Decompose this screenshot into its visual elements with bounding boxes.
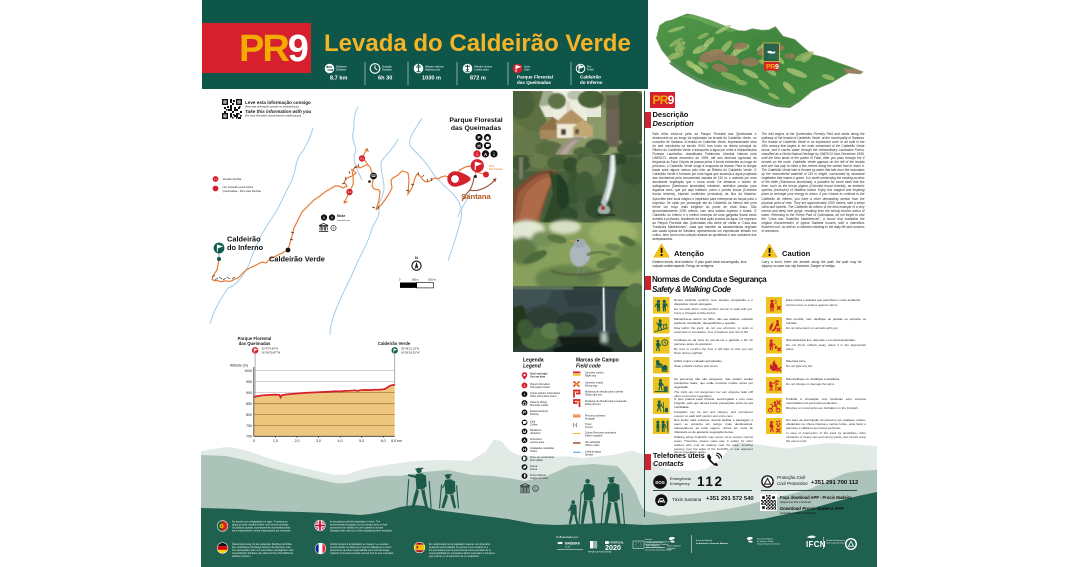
svg-text:da Madeira: da Madeira (667, 547, 676, 550)
svg-text:Lowest point: Lowest point (474, 68, 489, 72)
svg-text:0: 0 (253, 439, 255, 443)
svg-text:Santana: Santana (461, 192, 491, 201)
svg-text:das Queimadas: das Queimadas (517, 80, 551, 85)
svg-text:Right way: Right way (585, 375, 597, 378)
svg-text:i: i (524, 392, 525, 397)
svg-text:Mountain shelter: Mountain shelter (530, 404, 549, 407)
svg-text:1000: 1000 (244, 369, 252, 373)
svg-text:Leve esta informação consigo: Leve esta informação consigo (245, 100, 311, 105)
svg-text:872 m: 872 m (470, 76, 486, 82)
svg-text:P: P (523, 410, 526, 415)
svg-text:Secretaria Regional de Ambient: Secretaria Regional de Ambiente (645, 541, 670, 544)
svg-text:Promotor: Promotor (645, 538, 652, 541)
svg-text:Indigenous flora: Indigenous flora (530, 477, 548, 480)
svg-text:das Pedras: das Pedras (489, 167, 503, 171)
svg-text:16°54'20,87"W: 16°54'20,87"W (262, 350, 281, 354)
svg-text:5,0: 5,0 (359, 439, 364, 443)
svg-text:N: N (415, 255, 418, 260)
svg-text:900: 900 (246, 391, 252, 395)
svg-text:i: i (493, 152, 494, 157)
svg-text:Instituto das Florestas e: Instituto das Florestas e (826, 539, 845, 542)
svg-text:©: © (332, 226, 335, 230)
svg-text:Distance: Distance (336, 68, 347, 72)
svg-text:damages that may occur when di: damages that may occur when displaying t… (330, 530, 393, 533)
svg-text:Coffee: Coffee (530, 423, 538, 426)
svg-text:8,7 km: 8,7 km (330, 76, 347, 82)
svg-text:Legend: Legend (523, 364, 542, 370)
svg-text:Field code: Field code (576, 364, 601, 370)
svg-text:9.1: 9.1 (360, 157, 364, 161)
svg-text:Tunnel: Tunnel (585, 426, 593, 429)
svg-text:6,0: 6,0 (381, 439, 386, 443)
svg-text:800: 800 (246, 413, 252, 417)
svg-text:Others footpath: Others footpath (585, 435, 603, 438)
svg-text:das Queimadas: das Queimadas (451, 125, 501, 132)
svg-text:Wrong way: Wrong way (585, 385, 598, 388)
svg-text:Fuel station: Fuel station (530, 459, 544, 462)
svg-text:flickr: flickr (337, 214, 346, 218)
svg-text:Sharp right turn: Sharp right turn (585, 394, 603, 397)
svg-text:i: i (524, 383, 525, 388)
svg-text:Sharp left turn: Sharp left turn (585, 403, 601, 406)
svg-text:matériel ou humain pouvant sur: matériel ou humain pouvant survenir lors… (330, 552, 394, 555)
svg-text:seus responsáveis, sendo respo: seus responsáveis, sendo responsáveis po… (232, 530, 291, 533)
svg-text:IFCN: IFCN (806, 540, 826, 549)
svg-text:Natural e Alterações Climática: Natural e Alterações Climáticas (645, 543, 669, 546)
svg-text:do Ambiente e Recursos Naturai: do Ambiente e Recursos Naturais (696, 542, 729, 545)
svg-text:You are here: You are here (530, 376, 546, 379)
svg-text:Altitude (m): Altitude (m) (230, 364, 248, 368)
svg-text:750: 750 (246, 424, 252, 428)
svg-text:Caldeirão Verde: Caldeirão Verde (269, 255, 325, 264)
svg-text:500 m: 500 m (412, 279, 419, 282)
svg-text:Queimadas - Pico das Pedras: Queimadas - Pico das Pedras (223, 189, 262, 193)
svg-text:850: 850 (246, 402, 252, 406)
svg-text:9.1: 9.1 (348, 190, 352, 194)
svg-text:1030 m: 1030 m (422, 76, 441, 82)
svg-text:Attraction: Attraction (529, 432, 541, 435)
svg-text:Highest point: Highest point (425, 68, 440, 72)
svg-text:1,0: 1,0 (273, 439, 278, 443)
svg-text:Cofinanciado por:: Cofinanciado por: (556, 535, 579, 539)
svg-text:H: H (523, 447, 526, 452)
svg-text:Instituto das Florestas e: Instituto das Florestas e (645, 546, 663, 549)
svg-text:Caldeirão: Caldeirão (580, 75, 601, 80)
svg-text:PR9: PR9 (766, 64, 779, 71)
svg-text:Start: Start (524, 68, 530, 72)
svg-text:Duration: Duration (382, 68, 392, 72)
svg-text:Direção Regional do Turismo: Direção Regional do Turismo (757, 543, 780, 546)
svg-text:Secretaria Regional: Secretaria Regional (696, 539, 712, 542)
svg-text:Toilets: Toilets (530, 450, 538, 453)
svg-text:do Inferno: do Inferno (227, 243, 264, 252)
svg-text:950: 950 (246, 380, 252, 384)
svg-text:Caldeirão Verde: Caldeirão Verde (378, 341, 411, 346)
svg-text:(For more information consult: (For more information consult www.ifcn.m… (245, 115, 301, 118)
svg-text:P: P (477, 135, 480, 140)
svg-text:Parque Florestal: Parque Florestal (517, 75, 553, 80)
svg-text:2,0: 2,0 (295, 439, 300, 443)
svg-text:SOS: SOS (655, 479, 665, 484)
svg-text:Parking: Parking (530, 413, 539, 416)
svg-text:0: 0 (399, 279, 401, 282)
svg-text:do Inferno: do Inferno (580, 80, 603, 85)
svg-text:que ocurran en el transcurso d: que ocurran en el transcurso de su reali… (429, 555, 480, 558)
svg-text:das Queimadas: das Queimadas (239, 341, 271, 346)
svg-text:Stream: Stream (585, 453, 593, 456)
svg-text:3,0: 3,0 (316, 439, 321, 443)
svg-text:Leisure area: Leisure area (530, 441, 545, 444)
svg-text:14-20: 14-20 (565, 547, 571, 549)
svg-text:Finish: Finish (587, 68, 594, 72)
svg-text:auftreten können.: auftreten können. (232, 555, 251, 558)
svg-text:MADEIRA: MADEIRA (565, 542, 581, 546)
svg-text:4,0: 4,0 (338, 439, 343, 443)
svg-text:700: 700 (246, 435, 252, 439)
svg-text:©: © (534, 487, 537, 491)
svg-text:1000 m: 1000 m (428, 279, 436, 282)
svg-text:6h 30: 6h 30 (378, 76, 392, 82)
svg-text:2020: 2020 (605, 543, 621, 552)
svg-text:Take this information with you: Take this information with you (245, 109, 311, 114)
svg-text:16°56'18,91"W: 16°56'18,91"W (401, 350, 420, 354)
svg-text:Others roads: Others roads (585, 444, 600, 447)
svg-text:Fauna: Fauna (530, 468, 538, 471)
svg-text:Parque Florestal: Parque Florestal (449, 117, 502, 124)
svg-text:6,5 km: 6,5 km (391, 439, 402, 443)
svg-text:Conservação da Natureza: Conservação da Natureza (826, 542, 847, 545)
svg-text:Footpath: Footpath (585, 417, 595, 420)
svg-text:Other information board: Other information board (530, 395, 557, 398)
svg-text:Vereda da Ilha: Vereda da Ilha (223, 177, 242, 181)
svg-text:www.flickr.com: www.flickr.com (337, 220, 350, 222)
svg-text:Information board: Information board (530, 386, 550, 389)
svg-text:A: A (523, 438, 526, 443)
svg-text:i: i (476, 152, 477, 157)
